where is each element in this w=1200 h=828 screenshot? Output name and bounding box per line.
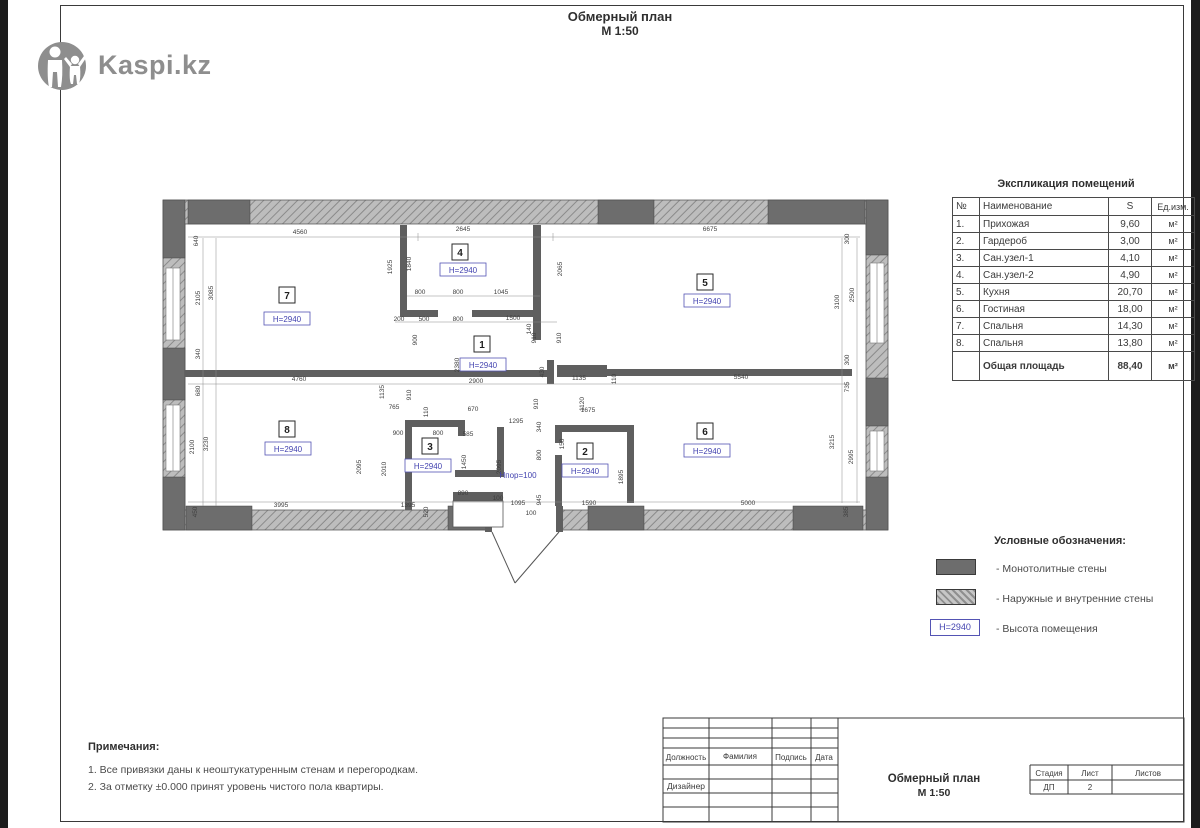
- dimension-label: 910: [406, 389, 413, 400]
- dimension-label: 500: [419, 316, 430, 323]
- dimension-label: 5000: [741, 500, 756, 507]
- dimension-label: 1500: [506, 315, 521, 322]
- outer-walls-hatched: [163, 200, 888, 530]
- explication-row: 2.Гардероб3,00м²: [953, 233, 1195, 250]
- dimension-label: 300: [844, 354, 851, 365]
- dimension-label: 2065: [557, 261, 564, 276]
- col-header-num: №: [953, 198, 980, 216]
- legend-item-walls: - Наружные и внутренние стены: [930, 589, 1190, 619]
- entrance-door-swing: [492, 532, 559, 583]
- dimension-label: 1675: [581, 407, 596, 414]
- height-label-swatch: H=2940: [930, 619, 980, 636]
- floor-plan-drawing: 4560264566756403085210534068021003230450…: [160, 193, 890, 593]
- total-label: Общая площадь: [980, 352, 1109, 381]
- drawing-scale-text: М 1:50: [460, 24, 780, 38]
- col-header-unit: Ед.изм.: [1152, 198, 1195, 216]
- dimension-label: 1045: [494, 289, 509, 296]
- explication-table: № Наименование S Ед.изм. 1.Прихожая9,60м…: [952, 197, 1195, 381]
- explication-row: 8.Спальня13,80м²: [953, 335, 1195, 352]
- room-number: 8: [284, 425, 290, 436]
- dimension-label: 4760: [292, 376, 307, 383]
- dimension-label: 1895: [618, 469, 625, 484]
- dimension-label: 340: [195, 348, 202, 359]
- note-2: 2. За отметку ±0.000 принят уровень чист…: [88, 779, 508, 796]
- dimension-label: 1135: [379, 385, 386, 399]
- dimension-label: 150: [559, 438, 566, 449]
- kaspi-logo: Kaspi.kz: [34, 38, 274, 96]
- dimension-label: 100: [493, 495, 504, 502]
- dimension-label: 2995: [848, 449, 855, 464]
- room-number: 6: [702, 427, 708, 438]
- legend: Условные обозначения: - Монотолитные сте…: [930, 535, 1190, 649]
- room-number: 4: [457, 248, 463, 259]
- dimension-label: 945: [536, 494, 543, 505]
- dimension-label: 3215: [829, 434, 836, 449]
- tb-sheet-header: Лист: [1081, 769, 1099, 778]
- dimension-label: 430: [539, 366, 546, 377]
- dimension-label: 1840: [406, 256, 413, 271]
- legend-title: Условные обозначения:: [930, 535, 1190, 547]
- dimension-label: 1450: [461, 454, 468, 469]
- tb-doc-title: Обмерный план: [888, 773, 981, 785]
- tb-stage-header: Стадия: [1035, 769, 1062, 778]
- room-height-label: H=2940: [449, 266, 478, 275]
- room-height-label: H=2940: [693, 297, 722, 306]
- room-height-label: H=2940: [693, 447, 722, 456]
- tb-doc-scale: М 1:50: [918, 787, 951, 799]
- dimension-label: 3230: [203, 436, 210, 451]
- dimension-label: 1395: [401, 502, 416, 509]
- dimension-label: 340: [536, 421, 543, 432]
- total-unit: м²: [1152, 352, 1195, 381]
- room-height-label: H=2940: [469, 361, 498, 370]
- photo-edge-right: [1191, 0, 1200, 828]
- dimension-label: 735: [844, 381, 851, 392]
- tb-sheet-value: 2: [1088, 783, 1093, 792]
- tb-header-date: Дата: [815, 753, 833, 762]
- room-number: 1: [479, 340, 485, 351]
- tb-header-surname: Фамилия: [723, 752, 757, 761]
- dimension-label: 1925: [387, 259, 394, 274]
- legend-item-monolithic: - Монотолитные стены: [930, 559, 1190, 589]
- dimension-label: 800: [433, 430, 444, 437]
- explication-row: 1.Прихожая9,60м²: [953, 216, 1195, 233]
- explication-row: 6.Гостиная18,00м²: [953, 301, 1195, 318]
- dimension-label: 520: [423, 506, 430, 517]
- drawing-title-text: Обмерный план: [460, 9, 780, 24]
- legend-item-height: H=2940 - Высота помещения: [930, 619, 1190, 649]
- dimension-label: 1590: [582, 500, 597, 507]
- room-number: 7: [284, 291, 290, 302]
- dimension-label: 910: [556, 332, 563, 343]
- tb-header-signature: Подпись: [775, 753, 807, 762]
- threshold-height-label: Hпор=100: [499, 471, 537, 480]
- room-height-label: H=2940: [414, 462, 443, 471]
- hatched-wall-swatch: [936, 589, 976, 605]
- dimension-label: 2095: [356, 459, 363, 474]
- explication-row: 7.Спальня14,30м²: [953, 318, 1195, 335]
- title-block: Должность Фамилия Подпись Дата Дизайнер …: [660, 716, 1188, 826]
- dimension-label: 765: [389, 404, 400, 411]
- dimension-label: 900: [412, 334, 419, 345]
- dimension-label: 800: [536, 449, 543, 460]
- room-height-label: H=2940: [274, 445, 303, 454]
- dimension-label: 3100: [834, 294, 841, 309]
- explication-row: 3.Сан.узел-14,10м²: [953, 250, 1195, 267]
- tb-designer-label: Дизайнер: [667, 781, 705, 791]
- col-header-name: Наименование: [980, 198, 1109, 216]
- dimension-label: 800: [453, 289, 464, 296]
- tb-stage-value: ДП: [1043, 783, 1054, 792]
- dimension-label: 670: [468, 406, 479, 413]
- dimension-label: 800: [415, 289, 426, 296]
- room-height-label: H=2940: [571, 467, 600, 476]
- closet-outline: [453, 501, 503, 527]
- explication-header-row: № Наименование S Ед.изм.: [953, 198, 1195, 216]
- dimension-label: 100: [526, 510, 537, 517]
- room-number: 5: [702, 278, 708, 289]
- dimension-label: 910: [531, 332, 538, 343]
- dimension-label: 890: [458, 490, 469, 497]
- col-header-s: S: [1109, 198, 1152, 216]
- room-height-label: H=2940: [273, 315, 302, 324]
- explication-title: Экспликация помещений: [952, 178, 1180, 190]
- window-marks: [166, 263, 884, 471]
- tb-header-position: Должность: [666, 753, 707, 762]
- dimension-label: 1095: [511, 500, 526, 507]
- room-number: 3: [427, 442, 433, 453]
- dimension-label: 450: [192, 506, 199, 517]
- dimension-label: 110: [611, 373, 618, 384]
- dimension-label: 3085: [208, 285, 215, 300]
- dimension-label: 910: [533, 398, 540, 409]
- photo-edge-left: [0, 0, 8, 828]
- monolithic-wall-swatch: [936, 559, 976, 575]
- dimension-label: 2100: [189, 439, 196, 454]
- dimension-label: 6675: [703, 226, 718, 233]
- dimension-label: 4560: [293, 229, 308, 236]
- dimension-label: 585: [463, 431, 474, 438]
- total-area: 88,40: [1109, 352, 1152, 381]
- dimension-label: 200: [394, 316, 405, 323]
- dimension-label: 2500: [849, 287, 856, 302]
- dimension-label: 2105: [195, 290, 202, 305]
- dimension-label: 680: [195, 385, 202, 396]
- interior-walls: [185, 225, 852, 510]
- dimension-label: 2010: [381, 461, 388, 476]
- dimension-label: 1295: [509, 418, 524, 425]
- tb-sheets-header: Листов: [1135, 769, 1161, 778]
- explication-row: 5.Кухня20,70м²: [953, 284, 1195, 301]
- drawing-title: Обмерный план М 1:50: [460, 9, 780, 38]
- room-number: 2: [582, 447, 588, 458]
- dimension-label: 1135: [572, 375, 586, 382]
- scanned-floor-plan-sheet: { "page": {"title_line1": "Обмерный план…: [0, 0, 1200, 828]
- dimension-label: 900: [393, 430, 404, 437]
- dimension-label: 300: [844, 233, 851, 244]
- explication-total-row: Общая площадь 88,40 м²: [953, 352, 1195, 381]
- dimension-label: 5540: [734, 374, 749, 381]
- notes-title: Примечания:: [88, 741, 508, 753]
- dimension-label: 385: [843, 506, 850, 517]
- notes-block: Примечания: 1. Все привязки даны к неошт…: [88, 741, 508, 796]
- explication-row: 4.Сан.узел-24,90м²: [953, 267, 1195, 284]
- dimension-label: 800: [453, 316, 464, 323]
- dimension-label: 110: [423, 406, 430, 417]
- dimension-label: 2900: [469, 378, 484, 385]
- dimension-label: 640: [193, 235, 200, 246]
- kaspi-logo-text: Kaspi.kz: [98, 50, 212, 81]
- monolithic-wall-blocks: [163, 200, 888, 530]
- note-1: 1. Все привязки даны к неоштукатуренным …: [88, 762, 508, 779]
- dimension-label: 3995: [274, 502, 289, 509]
- dimension-label: 2645: [456, 226, 471, 233]
